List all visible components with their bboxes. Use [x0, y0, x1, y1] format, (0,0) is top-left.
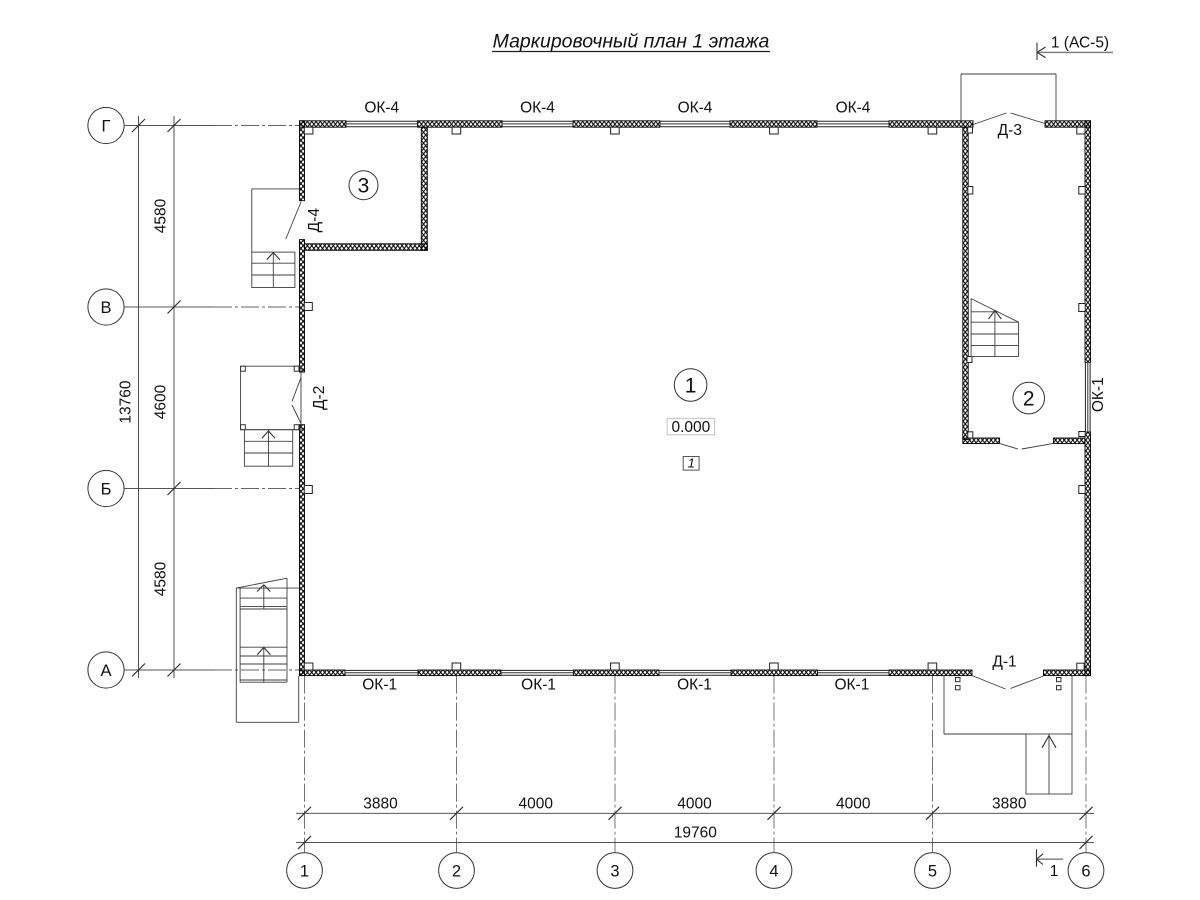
- svg-text:2: 2: [452, 862, 461, 880]
- svg-text:Маркировочный план 1 этажа: Маркировочный план 1 этажа: [493, 31, 770, 53]
- svg-text:Д-1: Д-1: [992, 654, 1016, 671]
- svg-text:Б: Б: [101, 480, 112, 498]
- svg-text:ОК-4: ОК-4: [520, 100, 555, 117]
- svg-text:3880: 3880: [992, 795, 1027, 812]
- svg-text:3880: 3880: [363, 795, 398, 812]
- svg-text:3: 3: [610, 862, 619, 880]
- svg-text:Д-4: Д-4: [306, 208, 323, 233]
- svg-text:6: 6: [1081, 862, 1090, 880]
- svg-text:4000: 4000: [677, 795, 712, 812]
- svg-text:1: 1: [1050, 863, 1059, 880]
- svg-text:4: 4: [769, 862, 778, 880]
- svg-text:1: 1: [300, 862, 309, 880]
- svg-text:Г: Г: [102, 117, 111, 135]
- svg-text:4000: 4000: [519, 795, 554, 812]
- svg-text:5: 5: [928, 862, 937, 880]
- svg-text:ОК-1: ОК-1: [521, 677, 556, 694]
- svg-text:1: 1: [688, 455, 695, 470]
- svg-text:ОК-4: ОК-4: [836, 100, 871, 117]
- svg-text:4580: 4580: [153, 561, 170, 596]
- svg-text:ОК-1: ОК-1: [362, 677, 397, 694]
- svg-text:Д-3: Д-3: [998, 122, 1022, 139]
- svg-text:ОК-4: ОК-4: [678, 100, 713, 117]
- svg-text:ОК-1: ОК-1: [834, 677, 869, 694]
- svg-text:3: 3: [358, 174, 370, 197]
- svg-text:4580: 4580: [153, 198, 170, 233]
- svg-text:Д-2: Д-2: [311, 386, 328, 410]
- svg-text:13760: 13760: [118, 380, 135, 423]
- svg-text:2: 2: [1023, 388, 1035, 411]
- svg-text:1 (АС-5): 1 (АС-5): [1051, 34, 1109, 51]
- svg-text:ОК-1: ОК-1: [677, 677, 712, 694]
- svg-text:0.000: 0.000: [672, 419, 711, 436]
- svg-text:ОК-4: ОК-4: [364, 100, 399, 117]
- svg-text:4000: 4000: [836, 795, 871, 812]
- svg-text:4600: 4600: [153, 384, 170, 419]
- svg-text:А: А: [100, 662, 111, 680]
- svg-text:1: 1: [685, 375, 697, 398]
- svg-text:В: В: [100, 299, 111, 317]
- svg-text:19760: 19760: [674, 824, 717, 841]
- svg-text:ОК-1: ОК-1: [1090, 377, 1107, 412]
